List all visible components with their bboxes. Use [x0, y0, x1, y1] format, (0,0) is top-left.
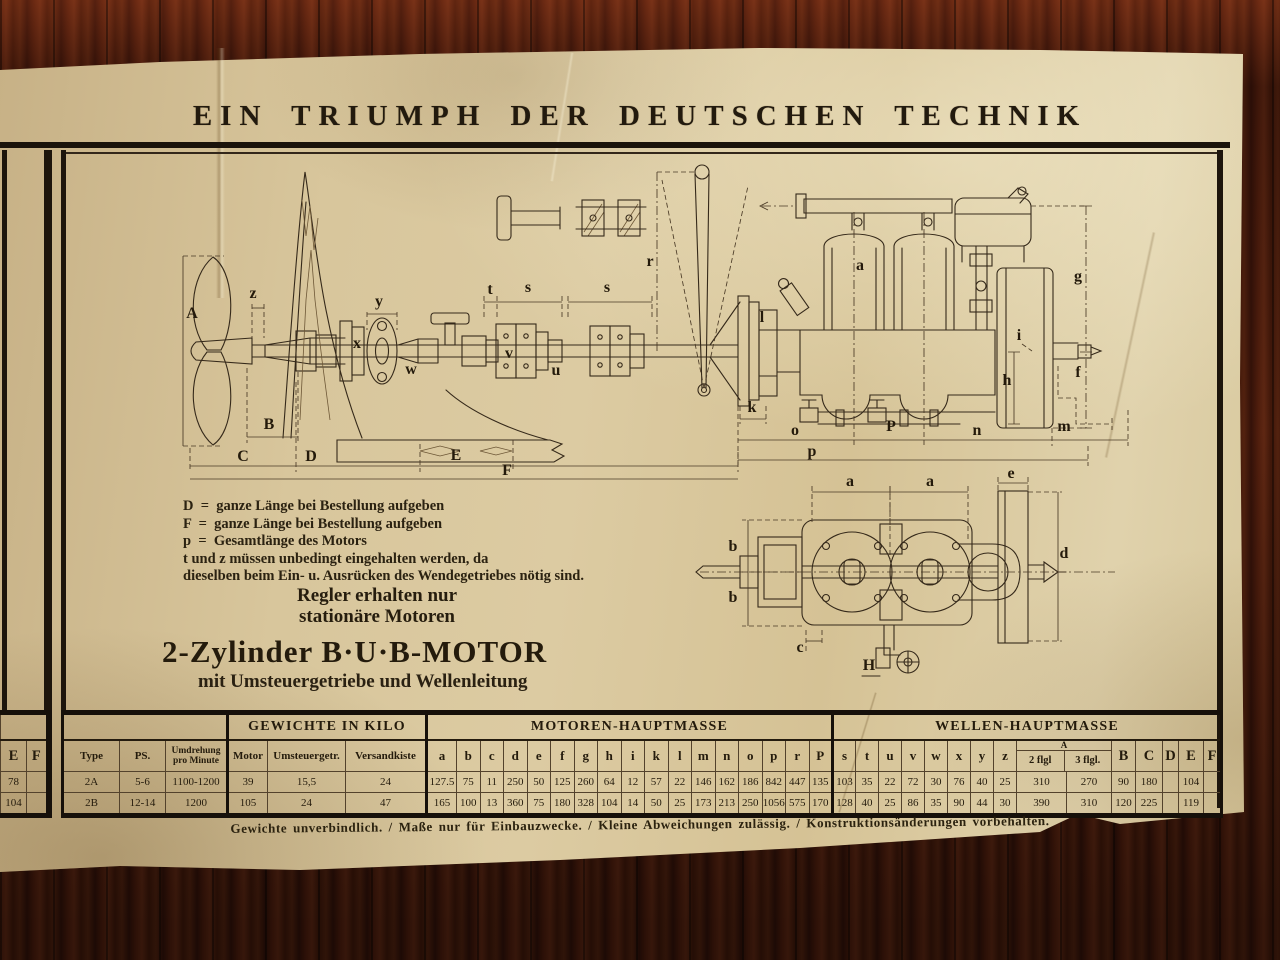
table-cell: 78 — [1, 772, 27, 793]
table-cell: 11 — [480, 772, 504, 793]
table-cell: l — [668, 740, 692, 772]
table-cell: w — [925, 740, 948, 772]
table-cell: b — [457, 740, 481, 772]
table-cell: 128 — [833, 793, 856, 816]
legend-line: F = ganze Länge bei Bestellung aufgeben — [183, 516, 584, 534]
table-cell: 12 — [621, 772, 645, 793]
table-cell: Type — [63, 740, 120, 772]
table-cell: 14 — [621, 793, 645, 816]
table-cell: 57 — [645, 772, 669, 793]
table-cell: 180 — [551, 793, 575, 816]
table-cell: 170 — [809, 793, 833, 816]
table-cell: 35 — [856, 772, 879, 793]
table-cell: Motor — [228, 740, 268, 772]
table-cell: 842 — [762, 772, 786, 793]
adjacent-panel-border — [2, 150, 7, 712]
table-cell: F — [1204, 740, 1222, 772]
table-cell — [63, 713, 228, 741]
table-cell: 447 — [786, 772, 810, 793]
table-cell: F — [27, 740, 49, 772]
table-cell: 250 — [504, 772, 528, 793]
table-cell: c — [480, 740, 504, 772]
table-cell: 76 — [948, 772, 971, 793]
wood-table-background: EIN TRIUMPH DER DEUTSCHEN TECHNIK — [0, 0, 1280, 960]
table-cell: e — [527, 740, 551, 772]
table-cell: s — [833, 740, 856, 772]
table-cell — [1204, 772, 1222, 793]
table-cell: 104 — [598, 793, 622, 816]
table-cell: 86 — [902, 793, 925, 816]
legend-notes: D = ganze Länge bei Bestellung aufgeben … — [183, 498, 584, 586]
table-cell: 2A — [63, 772, 120, 793]
table-cell: 180 — [1136, 772, 1163, 793]
table-cell: z — [994, 740, 1017, 772]
table-row: 2A5-61100-12003915,524127.57511250501252… — [63, 772, 1222, 793]
table-cell: a — [427, 740, 457, 772]
table-cell: 310 — [1017, 772, 1067, 793]
table-cell: 25 — [668, 793, 692, 816]
title-rule-thin — [61, 152, 1220, 154]
table-group-row: GEWICHTE IN KILOMOTOREN-HAUPTMASSEWELLEN… — [63, 713, 1222, 741]
specs-table: GEWICHTE IN KILOMOTOREN-HAUPTMASSEWELLEN… — [61, 710, 1223, 818]
table-cell: m — [692, 740, 716, 772]
table-cell — [1163, 793, 1179, 816]
table-cell: 12-14 — [120, 793, 166, 816]
table-cell: 25 — [879, 793, 902, 816]
adjacent-panel-border — [44, 150, 52, 712]
table-cell: E — [1179, 740, 1204, 772]
table-cell: 75 — [457, 772, 481, 793]
table-cell: 103 — [833, 772, 856, 793]
page-title: EIN TRIUMPH DER DEUTSCHEN TECHNIK — [0, 100, 1280, 133]
table-cell: Umsteuergetr. — [268, 740, 346, 772]
table-cell: 104 — [1179, 772, 1204, 793]
table-cell: 13 — [480, 793, 504, 816]
table-cell — [1204, 793, 1222, 816]
table-cell: 90 — [948, 793, 971, 816]
table-cell: 173 — [692, 793, 716, 816]
table-cell: g — [574, 740, 598, 772]
table-cell: 260 — [574, 772, 598, 793]
table-cell: 35 — [925, 793, 948, 816]
table-cell: v — [902, 740, 925, 772]
frame-left-border — [61, 150, 66, 710]
table-cell: 47 — [346, 793, 427, 816]
gewichte-title: GEWICHTE IN KILO — [228, 713, 427, 741]
product-title: 2-Zylinder B·U·B-MOTOR — [162, 634, 547, 670]
table-cell: 165 — [427, 793, 457, 816]
table-cell: 22 — [668, 772, 692, 793]
table-cell: 119 — [1179, 793, 1204, 816]
propeller-a-group: A2 flgl3 flgl. — [1017, 740, 1112, 772]
table-cell: d — [504, 740, 528, 772]
table-cell: 100 — [457, 793, 481, 816]
table-cell: 186 — [739, 772, 763, 793]
table-cell: 40 — [971, 772, 994, 793]
table-cell: 5-6 — [120, 772, 166, 793]
table-cell: 40 — [856, 793, 879, 816]
legend-line: t und z müssen unbedingt eingehalten wer… — [183, 551, 584, 569]
table-cell: f — [551, 740, 575, 772]
table-cell — [1163, 772, 1179, 793]
motoren-title: MOTOREN-HAUPTMASSE — [427, 713, 833, 741]
table-cell: i — [621, 740, 645, 772]
table-row: 2B12-14120010524471651001336075180328104… — [63, 793, 1222, 816]
table-cell: Versandkiste — [346, 740, 427, 772]
product-subtitle: mit Umsteuergetriebe und Wellenleitung — [198, 671, 527, 693]
table-cell: E — [1, 740, 27, 772]
table-cell: 15,5 — [268, 772, 346, 793]
table-cell: 135 — [809, 772, 833, 793]
table-cell: 75 — [527, 793, 551, 816]
regler-line: stationäre Motoren — [252, 606, 502, 627]
table-cell: n — [715, 740, 739, 772]
table-row: 78 — [1, 772, 49, 793]
table-cell: 2B — [63, 793, 120, 816]
table-cell: u — [879, 740, 902, 772]
table-cell: 162 — [715, 772, 739, 793]
table-cell: 24 — [346, 772, 427, 793]
title-rule — [0, 142, 1230, 148]
table-cell: h — [598, 740, 622, 772]
table-cell: 50 — [527, 772, 551, 793]
table-cell: y — [971, 740, 994, 772]
table-cell: t — [856, 740, 879, 772]
table-cell: 1100-1200 — [166, 772, 228, 793]
table-cell: 127.5 — [427, 772, 457, 793]
table-group-row — [1, 713, 49, 741]
table-cell: 105 — [228, 793, 268, 816]
table-cell: 64 — [598, 772, 622, 793]
adjacent-panel-table: EF78104 — [0, 710, 52, 818]
regler-note: Regler erhalten nur stationäre Motoren — [252, 585, 502, 627]
table-cell: r — [786, 740, 810, 772]
table-cell: 270 — [1067, 772, 1112, 793]
table-cell: 1200 — [166, 793, 228, 816]
table-cell: 146 — [692, 772, 716, 793]
table-cell: 90 — [1112, 772, 1136, 793]
table-cell: C — [1136, 740, 1163, 772]
table-cell: k — [645, 740, 669, 772]
table-cell — [1, 713, 49, 741]
table-cell: 30 — [994, 793, 1017, 816]
table-cell: 24 — [268, 793, 346, 816]
table-cell: PS. — [120, 740, 166, 772]
table-cell: 250 — [739, 793, 763, 816]
table-cell: 30 — [925, 772, 948, 793]
table-cell: 104 — [1, 793, 27, 816]
table-header-row: TypePS.Umdrehung pro MinuteMotorUmsteuer… — [63, 740, 1222, 772]
table-cell: 125 — [551, 772, 575, 793]
legend-line: dieselben beim Ein- u. Ausrücken des Wen… — [183, 568, 584, 586]
table-row: 104 — [1, 793, 49, 816]
table-cell: 328 — [574, 793, 598, 816]
wellen-title: WELLEN-HAUPTMASSE — [833, 713, 1222, 741]
table-cell: 575 — [786, 793, 810, 816]
table-cell — [27, 793, 49, 816]
table-cell: 50 — [645, 793, 669, 816]
regler-line: Regler erhalten nur — [252, 585, 502, 606]
table-cell: P — [809, 740, 833, 772]
table-header-row: EF — [1, 740, 49, 772]
table-cell: x — [948, 740, 971, 772]
table-cell: p — [762, 740, 786, 772]
table-cell: 72 — [902, 772, 925, 793]
table-cell: 39 — [228, 772, 268, 793]
table-cell: 25 — [994, 772, 1017, 793]
table-cell: 44 — [971, 793, 994, 816]
table-cell: 22 — [879, 772, 902, 793]
table-cell — [27, 772, 49, 793]
table-cell: 213 — [715, 793, 739, 816]
legend-line: D = ganze Länge bei Bestellung aufgeben — [183, 498, 584, 516]
table-cell: 360 — [504, 793, 528, 816]
table-cell: 1056 — [762, 793, 786, 816]
table-cell: D — [1163, 740, 1179, 772]
table-cell: B — [1112, 740, 1136, 772]
legend-line: p = Gesamtlänge des Motors — [183, 533, 584, 551]
table-cell: o — [739, 740, 763, 772]
table-cell: Umdrehung pro Minute — [166, 740, 228, 772]
